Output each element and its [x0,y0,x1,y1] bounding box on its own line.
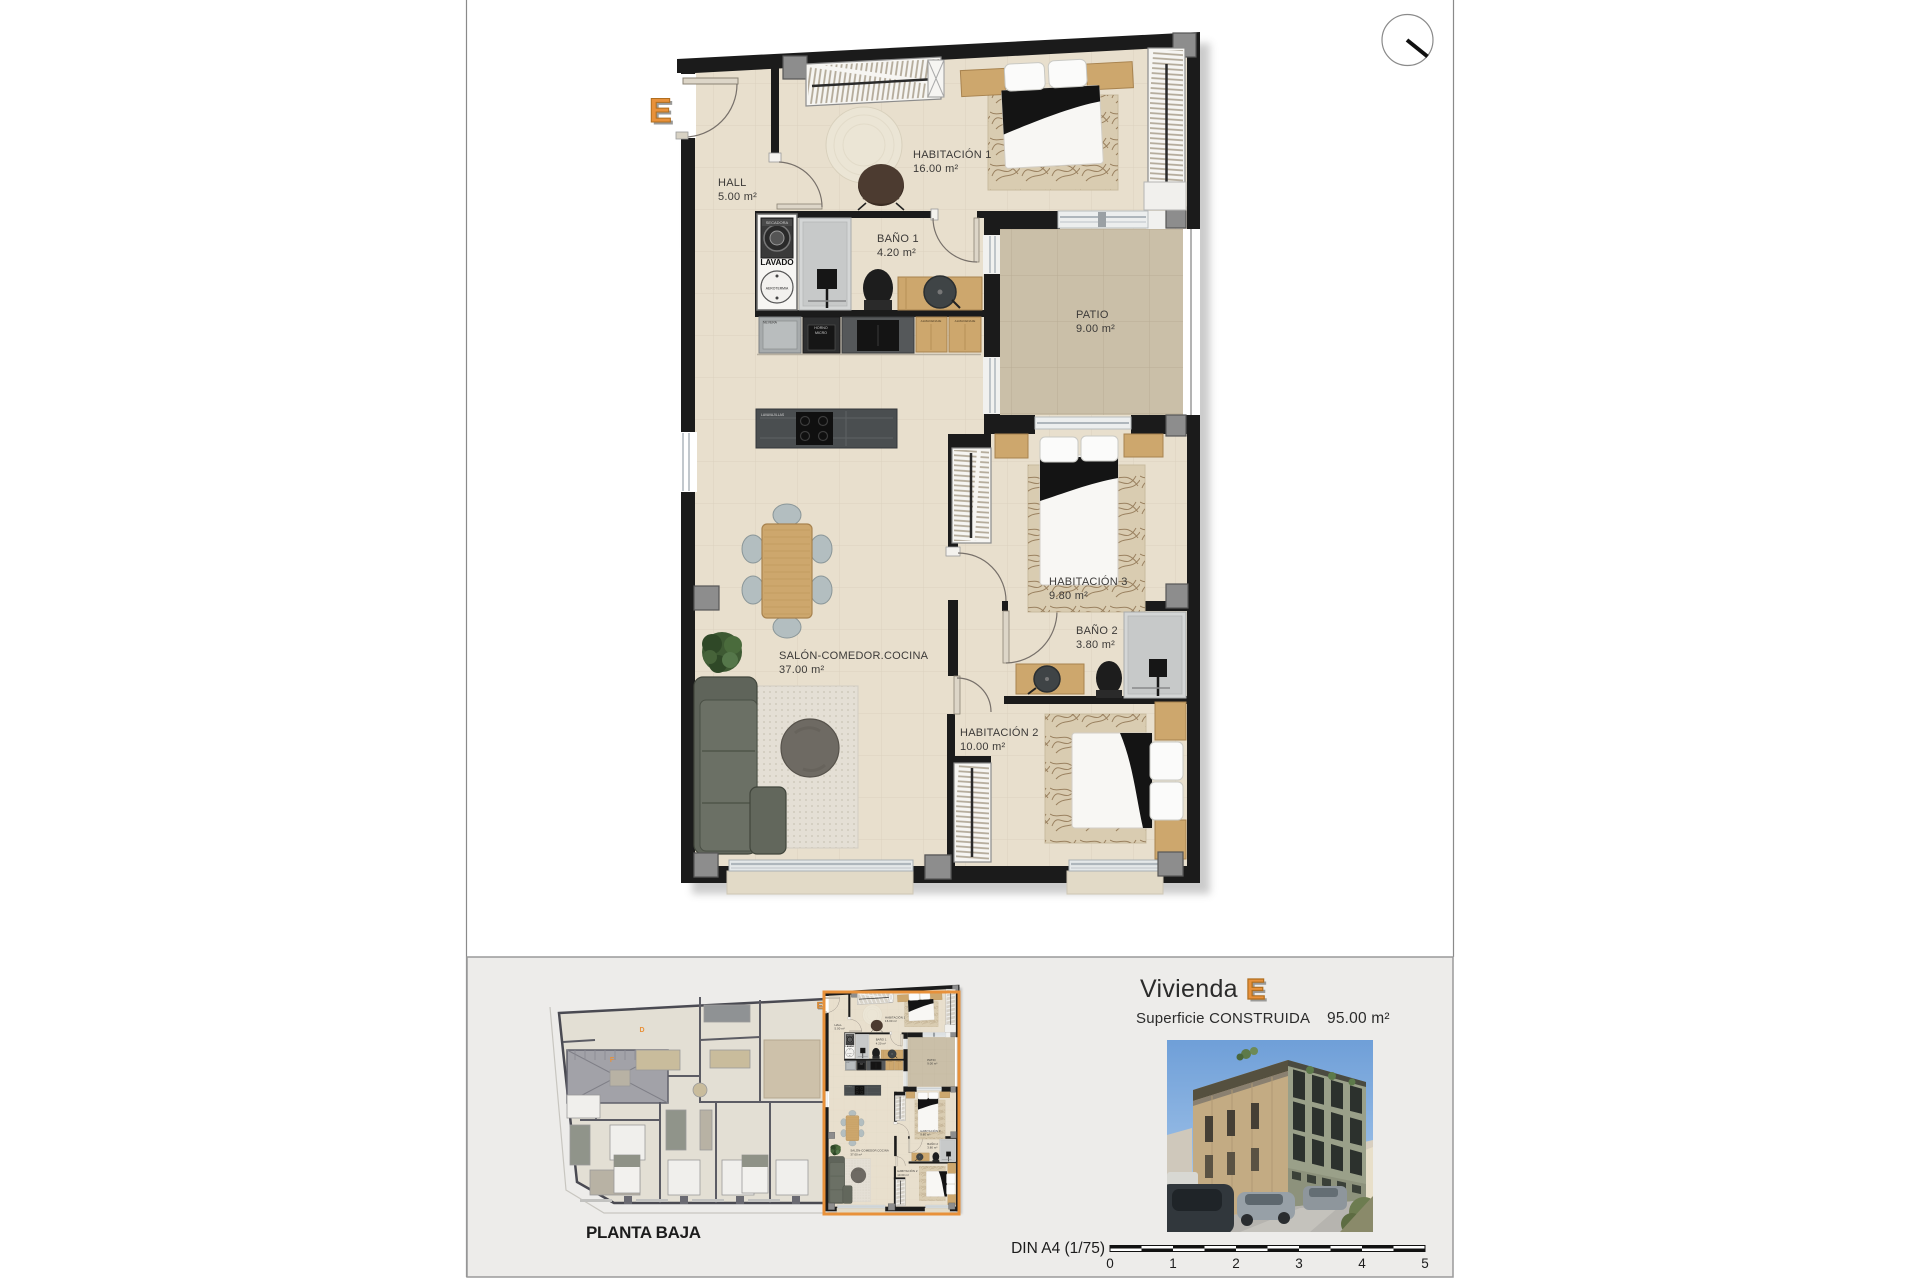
svg-text:SECADORA: SECADORA [766,220,789,225]
svg-text:PLANTA BAJA: PLANTA BAJA [586,1223,701,1242]
svg-text:DIN A4 (1/75): DIN A4 (1/75) [1011,1240,1105,1257]
svg-text:D: D [639,1027,644,1034]
svg-text:ALMACENAJE: ALMACENAJE [921,319,942,323]
svg-text:E: E [1246,974,1265,1006]
svg-text:LAVADO: LAVADO [760,258,794,267]
svg-text:5.00 m²: 5.00 m² [718,191,757,203]
svg-text:3.80 m²: 3.80 m² [1076,639,1115,651]
svg-text:4.20 m²: 4.20 m² [877,247,916,259]
svg-text:NEVERA: NEVERA [763,321,778,325]
svg-text:SALÓN-COMEDOR.COCINA: SALÓN-COMEDOR.COCINA [779,649,929,662]
svg-text:BAÑO 2: BAÑO 2 [1076,624,1118,637]
svg-text:HORNO: HORNO [814,326,828,330]
svg-text:ALMACENAJE: ALMACENAJE [955,319,976,323]
svg-text:3: 3 [1295,1256,1303,1271]
svg-text:AEROTERMIA: AEROTERMIA [766,287,789,291]
svg-text:BAÑO 1: BAÑO 1 [877,232,919,245]
svg-text:2: 2 [1232,1256,1240,1271]
svg-text:LAVAVAJILLAS: LAVAVAJILLAS [761,413,785,417]
svg-text:9.80 m²: 9.80 m² [1049,590,1088,602]
svg-text:37.00 m²: 37.00 m² [779,664,824,676]
svg-text:Superficie CONSTRUIDA: Superficie CONSTRUIDA [1136,1010,1310,1027]
svg-text:E: E [649,92,672,130]
svg-text:HABITACIÓN 3: HABITACIÓN 3 [1049,575,1128,588]
svg-text:9.00 m²: 9.00 m² [1076,323,1115,335]
svg-text:10.00 m²: 10.00 m² [960,741,1005,753]
svg-text:HABITACIÓN 2: HABITACIÓN 2 [960,726,1039,739]
svg-text:95.00 m²: 95.00 m² [1327,1010,1390,1027]
svg-text:Vivienda: Vivienda [1140,975,1238,1003]
svg-text:4: 4 [1358,1256,1366,1271]
svg-text:1: 1 [1169,1256,1177,1271]
svg-text:PATIO: PATIO [1076,309,1109,321]
svg-text:5: 5 [1421,1256,1429,1271]
svg-text:F: F [610,1057,615,1064]
svg-text:MICRO: MICRO [815,331,827,335]
svg-text:0: 0 [1106,1256,1114,1271]
svg-text:16.00 m²: 16.00 m² [913,163,958,175]
svg-text:HALL: HALL [718,177,747,189]
svg-text:HABITACIÓN 1: HABITACIÓN 1 [913,148,992,161]
